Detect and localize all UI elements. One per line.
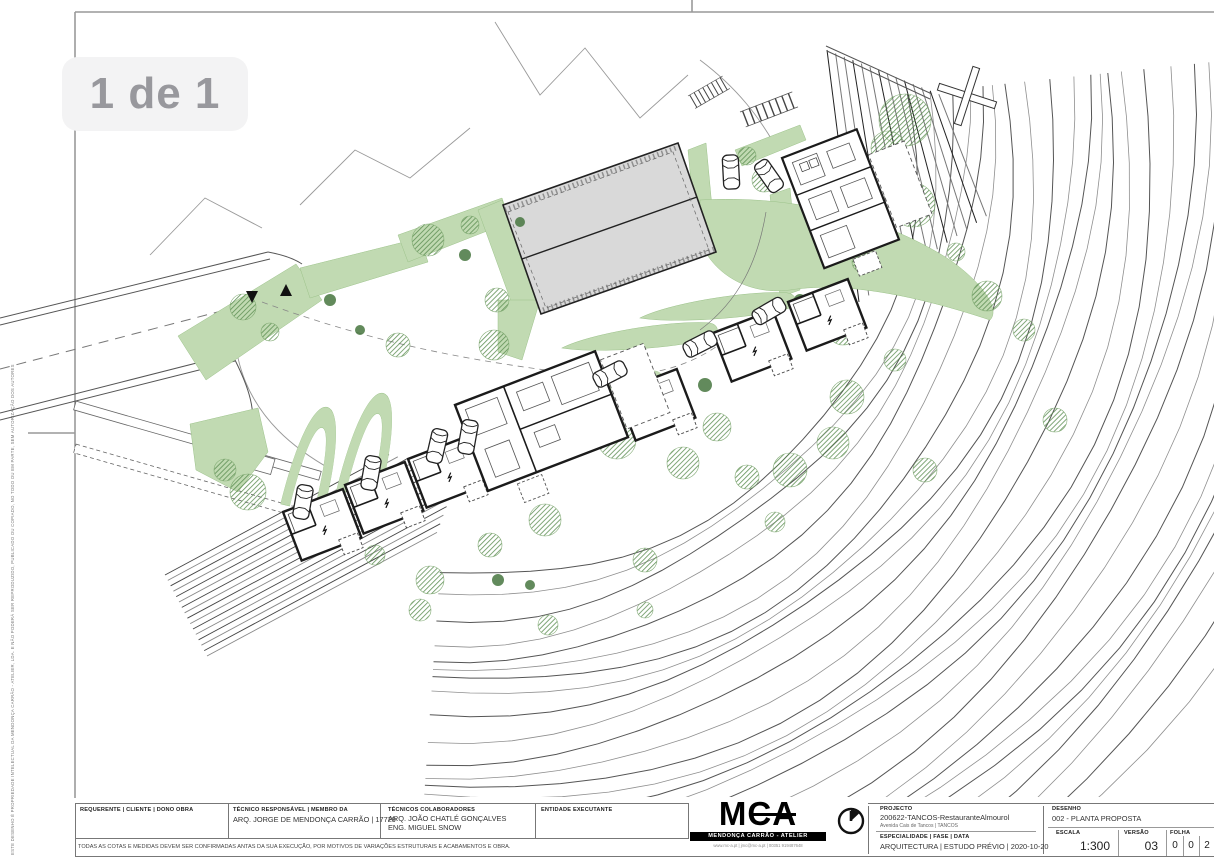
client-label: REQUERENTE | CLIENTE | DONO OBRA [80,807,193,813]
sheet-digit: 0 [1184,840,1198,851]
stairs [740,92,798,127]
existing-building [503,143,716,314]
version-label: VERSÃO [1124,830,1149,836]
logo-crossbar [750,813,796,816]
clock-icon [836,806,866,836]
stairs [688,76,730,108]
specialty-value: ARQUITECTURA | ESTUDO PRÉVIO | 2020-10-2… [880,842,1049,851]
company-logo: MCA MENDONÇA CARRÃO - ATELIER www.mc-a.p… [690,798,826,856]
drawing-value: 002 - PLANTA PROPOSTA [1052,814,1141,823]
drawing-label: DESENHO [1052,806,1081,812]
page-indicator-label: 1 de 1 [90,69,221,119]
sheet-digit: 0 [1168,840,1182,851]
responsible-label: TÉCNICO RESPONSÁVEL | MEMBRO DA [233,807,348,813]
scale-label: ESCALA [1056,830,1080,836]
specialty-label: ESPECIALIDADE | FASE | DATA [880,834,969,840]
collaborator-1: ARQ. JOÃO CHATLÉ GONÇALVES [388,814,506,823]
responsible-value: ARQ. JORGE DE MENDONÇA CARRÃO | 17729 [233,815,396,824]
executing-entity-label: ENTIDADE EXECUTANTE [541,807,612,813]
version-value: 03 [1124,839,1158,853]
project-address: Avenida Cais de Tancos | TANCOS [880,823,958,829]
buildings [283,76,943,570]
sheet-number-label: FOLHA [1170,830,1190,836]
scale-value: 1:300 [1056,839,1110,853]
logo-subtitle: MENDONÇA CARRÃO - ATELIER [690,832,826,841]
disclaimer-note: TODAS AS COTAS E MEDIDAS DEVEM SER CONFI… [78,844,510,850]
collaborator-2: ENG. MIGUEL SNOW [388,823,461,832]
car-symbol [722,155,740,190]
document-viewer: ESTE DESENHO É PROPRIEDADE INTELECTUAL D… [0,0,1214,860]
copyright-side-note: ESTE DESENHO É PROPRIEDADE INTELECTUAL D… [10,364,15,855]
page-indicator-badge: 1 de 1 [62,57,248,131]
project-label: PROJECTO [880,806,912,812]
title-block: REQUERENTE | CLIENTE | DONO OBRA TÉCNICO… [0,798,1214,860]
collaborators-label: TÉCNICOS COLABORADORES [388,807,475,813]
housing-unit [713,310,795,391]
logo-contacts: www.mc-a.pt | jmc@mc-a.pt | 00351 919487… [690,843,826,848]
project-value: 200622-TANCOS-RestauranteAlmourol [880,813,1009,822]
sheet-digit: 2 [1200,840,1214,851]
